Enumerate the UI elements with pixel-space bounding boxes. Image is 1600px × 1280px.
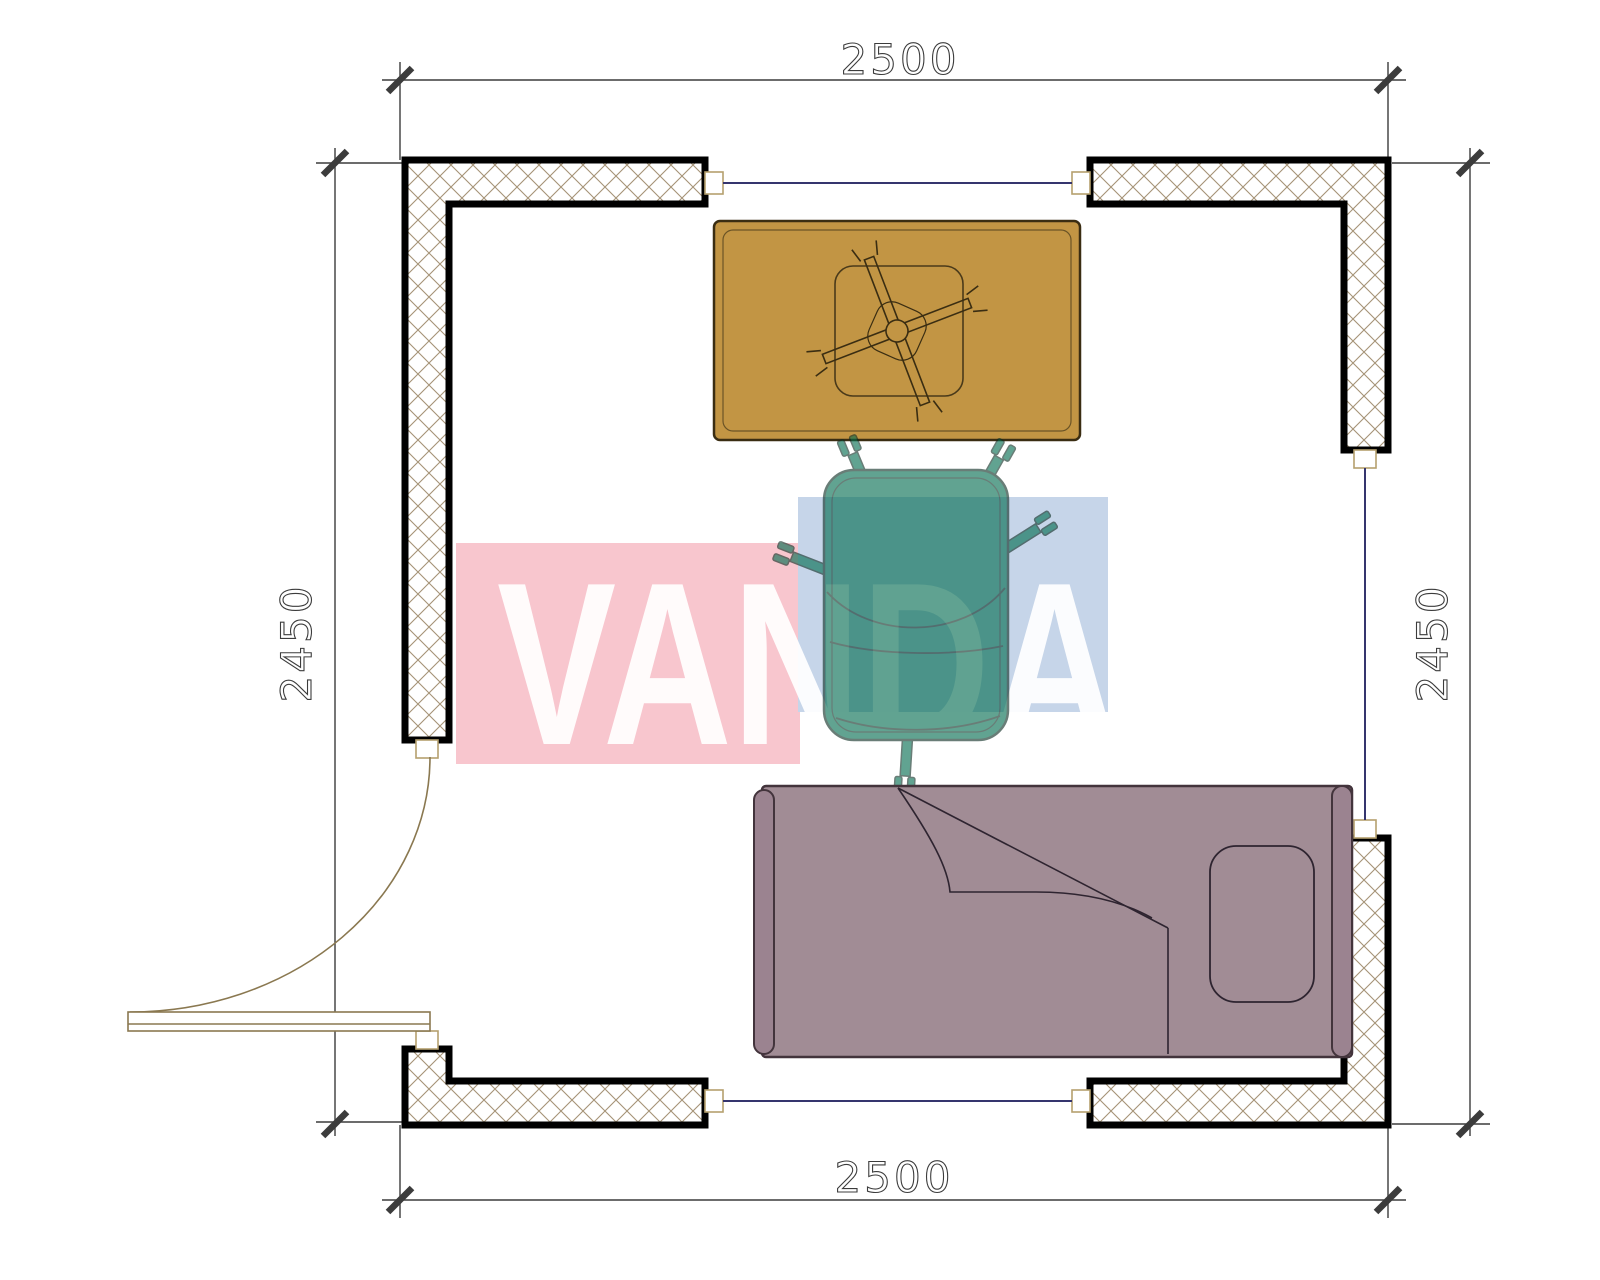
window-jamb xyxy=(1072,172,1090,194)
wall-top-right xyxy=(1090,160,1388,450)
dimension-label-right: 2450 xyxy=(1408,584,1457,703)
single-bed xyxy=(754,786,1352,1057)
swing-door xyxy=(128,757,430,1031)
window-jamb xyxy=(1072,1090,1090,1112)
door-swing-arc xyxy=(130,757,430,1012)
window-jamb xyxy=(705,1090,723,1112)
dimension-left xyxy=(316,148,405,1136)
door-leaf xyxy=(128,1012,430,1031)
window-jamb xyxy=(1354,820,1376,838)
bed-headboard xyxy=(1332,786,1352,1057)
dimension-label-bottom: 2500 xyxy=(835,1153,954,1202)
bed-footboard xyxy=(754,790,774,1054)
watermark-text: VANDA xyxy=(497,535,1119,794)
dimension-label-top: 2500 xyxy=(841,35,960,84)
window-jamb xyxy=(705,172,723,194)
bed-mattress xyxy=(762,786,1352,1057)
floor-plan-page: 2500 2500 2450 2450 xyxy=(0,0,1600,1280)
door-jamb xyxy=(416,1031,438,1049)
table xyxy=(714,212,1080,450)
window-jamb xyxy=(1354,450,1376,468)
door-jamb xyxy=(416,740,438,758)
dimension-label-left: 2450 xyxy=(272,584,321,703)
wall-bottom-left xyxy=(405,1049,705,1125)
chair-seat xyxy=(824,470,1008,740)
floor-plan-canvas: 2500 2500 2450 2450 xyxy=(0,0,1600,1280)
